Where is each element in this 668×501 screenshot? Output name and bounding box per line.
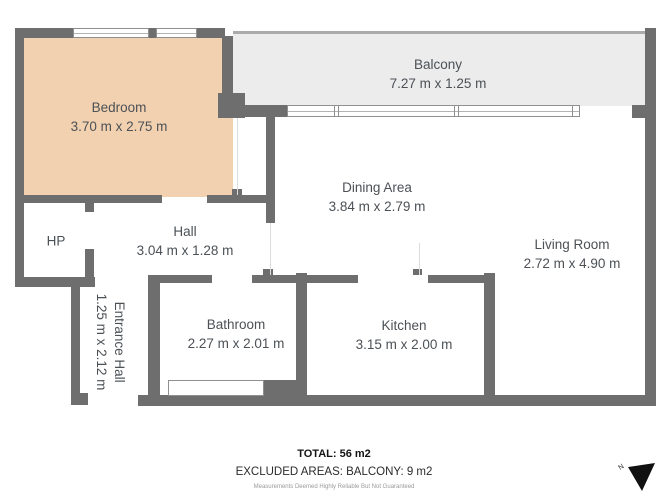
wall-segment <box>207 195 275 203</box>
wall-segment <box>645 28 656 406</box>
north-arrow-icon: N <box>608 452 660 496</box>
wall-segment <box>263 380 307 397</box>
room-dims: 3.84 m x 2.79 m <box>329 197 426 216</box>
wall-segment <box>71 393 88 405</box>
room-label-entrance-hall: Entrance Hall 1.25 m x 2.12 m <box>92 294 128 391</box>
wall-segment <box>15 277 95 287</box>
wall-segment <box>266 110 275 223</box>
wall-segment <box>307 275 358 283</box>
room-dims: 3.15 m x 2.00 m <box>356 335 453 354</box>
window-mullion <box>288 111 579 112</box>
opening-line <box>270 223 271 275</box>
disclaimer-text: Measurements Deemed Highly Reliable But … <box>0 484 668 490</box>
room-name: Bathroom <box>188 315 285 334</box>
window <box>287 105 580 117</box>
room-label-hp: HP <box>47 232 66 251</box>
wall-segment <box>138 395 656 406</box>
room-label-balcony: Balcony 7.27 m x 1.25 m <box>390 55 487 93</box>
room-name: Dining Area <box>329 178 426 197</box>
wall-segment <box>148 275 160 397</box>
window-mullion <box>458 106 459 116</box>
room-label-dining-area: Dining Area 3.84 m x 2.79 m <box>329 178 426 216</box>
wall-segment <box>71 286 80 396</box>
room-label-bathroom: Bathroom 2.27 m x 2.01 m <box>188 315 285 353</box>
floor-plan: Bedroom 3.70 m x 2.75 m Balcony 7.27 m x… <box>0 0 668 501</box>
room-name: Entrance Hall <box>110 294 128 391</box>
room-dims: 7.27 m x 1.25 m <box>390 74 487 93</box>
room-name: Kitchen <box>356 316 453 335</box>
room-dims: 2.27 m x 2.01 m <box>188 334 285 353</box>
opening-line <box>237 118 238 195</box>
wall-segment <box>428 275 490 283</box>
opening-line <box>419 243 420 275</box>
window-mullion <box>338 106 339 116</box>
room-name: Bedroom <box>71 98 168 117</box>
wall-segment <box>296 273 307 397</box>
door-jamb <box>263 269 273 275</box>
room-label-kitchen: Kitchen 3.15 m x 2.00 m <box>356 316 453 354</box>
wall-segment <box>85 249 94 279</box>
room-label-hall: Hall 3.04 m x 1.28 m <box>137 222 234 260</box>
room-dims: 1.25 m x 2.12 m <box>92 294 110 391</box>
room-dims: 3.70 m x 2.75 m <box>71 117 168 136</box>
total-area-text: TOTAL: 56 m2 <box>0 448 668 460</box>
wall-segment <box>218 93 245 118</box>
balcony-railing <box>233 31 645 34</box>
excluded-areas-text: EXCLUDED AREAS: BALCONY: 9 m2 <box>0 466 668 478</box>
window <box>156 28 197 38</box>
wall-segment <box>23 195 162 203</box>
wall-segment <box>632 105 645 118</box>
north-arrow-triangle <box>628 463 655 491</box>
window <box>73 28 149 38</box>
room-label-bedroom: Bedroom 3.70 m x 2.75 m <box>71 98 168 136</box>
wall-segment <box>148 275 212 283</box>
window <box>168 380 264 396</box>
window-mullion <box>334 106 335 116</box>
door-jamb <box>413 269 422 275</box>
room-dims: 2.72 m x 4.90 m <box>524 254 621 273</box>
window-mullion <box>74 33 148 34</box>
window-mullion <box>454 106 455 116</box>
wall-segment <box>15 28 24 287</box>
room-name: HP <box>47 232 66 251</box>
room-name: Balcony <box>390 55 487 74</box>
window-mullion <box>572 106 573 116</box>
room-name: Hall <box>137 222 234 241</box>
north-label: N <box>617 463 625 472</box>
wall-segment <box>484 273 495 397</box>
room-name: Living Room <box>524 235 621 254</box>
room-label-living-room: Living Room 2.72 m x 4.90 m <box>524 235 621 273</box>
room-dims: 3.04 m x 1.28 m <box>137 241 234 260</box>
wall-segment <box>222 36 233 96</box>
window-mullion <box>157 33 196 34</box>
